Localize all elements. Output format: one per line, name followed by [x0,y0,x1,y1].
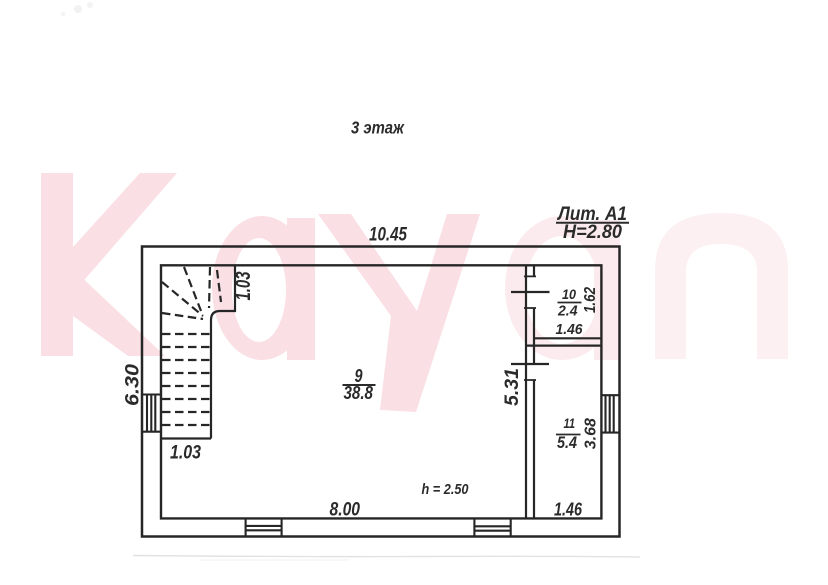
svg-text:1.46: 1.46 [554,500,583,520]
svg-text:3 этаж: 3 этаж [351,118,405,138]
svg-text:Н=2.80: Н=2.80 [563,222,622,243]
svg-text:1.62: 1.62 [582,287,599,313]
svg-text:h = 2.50: h = 2.50 [422,481,470,498]
svg-text:5.4: 5.4 [557,433,577,452]
svg-text:38.8: 38.8 [344,383,374,403]
svg-text:8.00: 8.00 [330,500,361,521]
svg-text:10: 10 [562,286,576,302]
svg-text:1.46: 1.46 [556,321,584,338]
svg-text:2.4: 2.4 [557,303,578,320]
svg-text:11: 11 [564,416,576,431]
svg-text:10.45: 10.45 [369,225,407,246]
svg-text:3.68: 3.68 [583,418,600,449]
svg-text:1.03: 1.03 [232,271,255,300]
svg-text:1.03: 1.03 [170,443,201,464]
svg-text:6.30: 6.30 [123,364,144,406]
svg-text:5.31: 5.31 [502,368,523,406]
